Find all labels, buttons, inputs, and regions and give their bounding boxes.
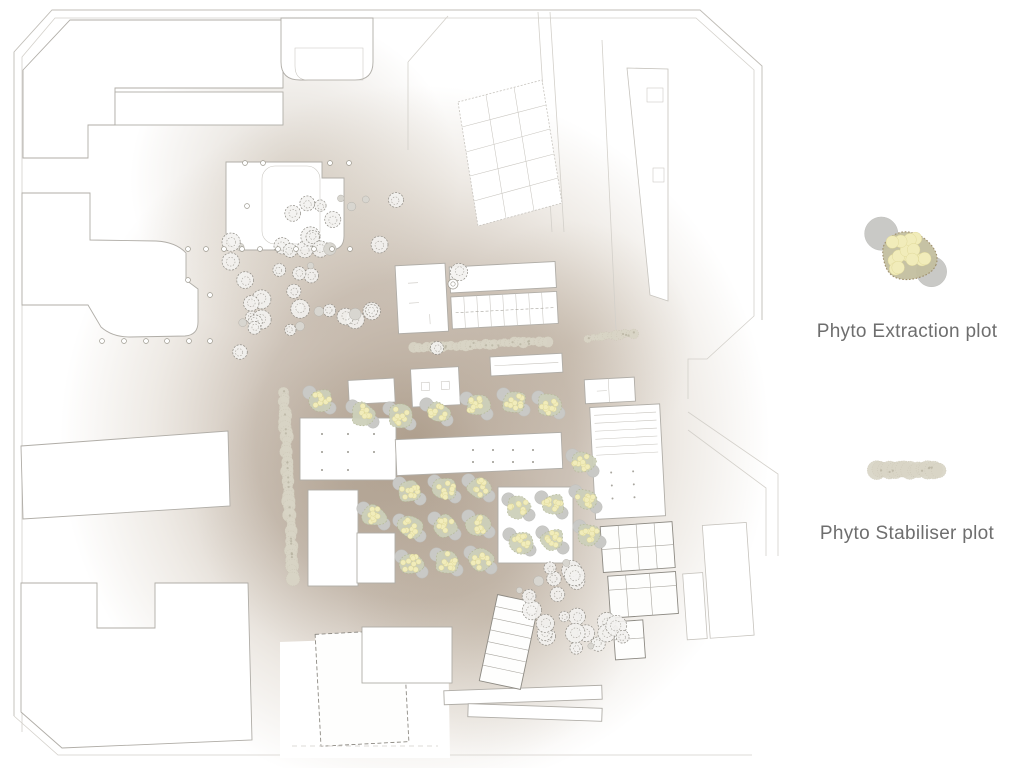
tree-symbol (563, 559, 570, 566)
tree-symbol (570, 642, 582, 654)
tree-symbol (544, 562, 556, 574)
tree-symbol (233, 345, 248, 360)
column-dot (100, 339, 105, 344)
tree-symbol (534, 576, 544, 586)
tree-symbol (296, 322, 305, 331)
tree-symbol (323, 304, 335, 316)
tree-symbol (285, 324, 296, 335)
tree-symbol (349, 308, 361, 320)
tree-symbol (243, 296, 258, 311)
legend-item-extraction: Phyto Extraction plot (790, 210, 1024, 343)
tree-symbol (285, 205, 301, 221)
tree-symbol (588, 643, 594, 649)
phyto-stabiliser-icon (862, 452, 952, 488)
masterplan-canvas (0, 0, 790, 768)
tree-symbol (362, 196, 369, 203)
column-dot (243, 161, 248, 166)
legend-label-stabiliser: Phyto Stabiliser plot (790, 523, 1024, 545)
tree-symbol (536, 614, 554, 632)
legend-label-extraction: Phyto Extraction plot (790, 321, 1024, 343)
tree-symbol (430, 341, 443, 354)
column-dot (144, 339, 149, 344)
legend-item-stabiliser: Phyto Stabiliser plot (790, 452, 1024, 545)
tree-symbol (559, 611, 570, 622)
column-dot (122, 339, 127, 344)
column-dot (276, 247, 281, 252)
tree-symbol (371, 236, 388, 253)
tree-symbol (366, 304, 378, 316)
column-dot (222, 247, 227, 252)
column-dot (245, 204, 250, 209)
south-plaza (280, 627, 452, 758)
tree-symbol (314, 307, 324, 317)
tree-symbol (237, 272, 254, 289)
tree-symbol (287, 284, 301, 298)
phyto-extraction-plot (865, 217, 947, 287)
tree-symbol (569, 608, 586, 625)
column-dot (240, 247, 245, 252)
tree-symbol (347, 202, 356, 211)
column-dot (165, 339, 170, 344)
tree-symbol (315, 200, 327, 212)
tree-symbol (273, 264, 286, 277)
tree-symbol (564, 565, 585, 586)
tree-symbol (248, 321, 261, 334)
tree-symbol (565, 623, 585, 643)
tree-symbol (304, 268, 319, 283)
column-dot (204, 247, 209, 252)
tree-symbol (300, 196, 315, 211)
tree-symbol (222, 253, 239, 270)
tree-symbol (325, 211, 341, 227)
column-dot (187, 339, 192, 344)
column-dot (294, 247, 299, 252)
phyto-stabiliser-strip (867, 461, 946, 480)
column-dot (186, 247, 191, 252)
phyto-extraction-icon (859, 210, 955, 294)
column-dot (208, 339, 213, 344)
column-dot (312, 247, 317, 252)
building-footprint (21, 431, 230, 519)
tree-symbol (450, 263, 467, 280)
column-dot (208, 293, 213, 298)
column-dot (186, 278, 191, 283)
rooms-row-building (451, 291, 559, 329)
tree-symbol (550, 587, 565, 602)
tree-symbol (522, 589, 536, 603)
tree-symbol (291, 299, 310, 318)
tree-symbol (337, 195, 344, 202)
column-dot (261, 161, 266, 166)
column-dot (330, 247, 335, 252)
tree-symbol (389, 193, 404, 208)
spiral-stair-symbol (448, 279, 458, 289)
column-dot (347, 161, 352, 166)
legend: Phyto Extraction plot Phyto Stabiliser p… (790, 0, 1024, 768)
column-dot (328, 161, 333, 166)
building-footprint (115, 92, 283, 125)
column-dot (348, 247, 353, 252)
tree-symbol (307, 262, 314, 269)
tree-symbol (293, 267, 306, 280)
tree-symbol (516, 587, 522, 593)
column-dot (258, 247, 263, 252)
tree-symbol (239, 319, 247, 327)
tree-symbol (616, 630, 629, 643)
masterplan-figure: Phyto Extraction plot Phyto Stabiliser p… (0, 0, 1024, 768)
